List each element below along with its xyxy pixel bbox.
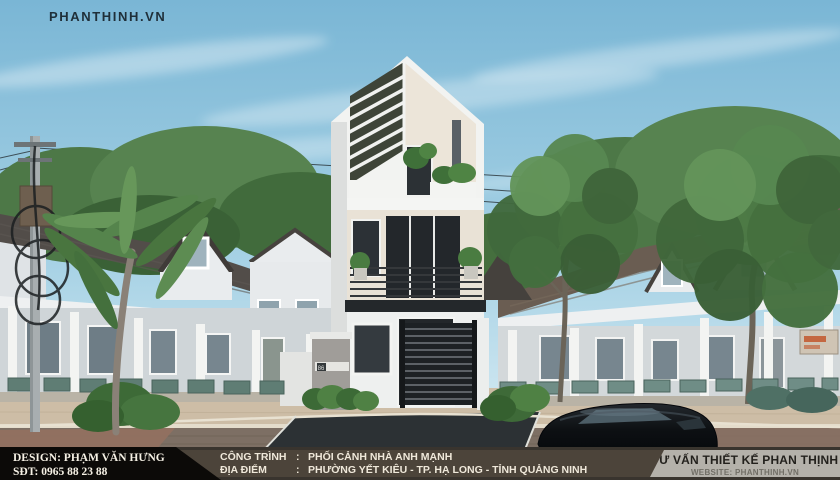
location-row: ĐỊA ĐIỂM : PHƯỜNG YẾT KIÊU - TP. HẠ LONG…	[220, 464, 672, 477]
shop-sign	[800, 330, 838, 354]
house-number: 86	[318, 366, 325, 372]
project-separator: :	[296, 451, 308, 464]
location-label: ĐỊA ĐIỂM	[220, 464, 296, 477]
footer-project-info: CÔNG TRÌNH : PHỐI CẢNH NHÀ ANH MẠNH ĐỊA …	[168, 450, 672, 477]
project-row: CÔNG TRÌNH : PHỐI CẢNH NHÀ ANH MẠNH	[220, 451, 672, 464]
footer-bar: CÔNG TRÌNH : PHỐI CẢNH NHÀ ANH MẠNH ĐỊA …	[0, 447, 840, 480]
render-canvas: 86	[0, 0, 840, 480]
location-separator: :	[296, 464, 308, 477]
footer-brand: TƯ VẤN THIẾT KẾ PHAN THỊNH WEBSITE: PHAN…	[650, 450, 840, 477]
entry-gate	[400, 320, 477, 408]
project-value: PHỐI CẢNH NHÀ ANH MẠNH	[308, 451, 452, 464]
project-label: CÔNG TRÌNH	[220, 451, 296, 464]
designer-phone: SĐT: 0965 88 23 88	[13, 466, 224, 480]
watermark-logo: PHANTHINH.VN	[49, 9, 166, 24]
architectural-render: 86	[0, 0, 840, 480]
brand-title: TƯ VẤN THIẾT KẾ PHAN THỊNH	[650, 453, 840, 467]
brand-website: WEBSITE: PHANTHINH.VN	[650, 468, 840, 477]
location-value: PHƯỜNG YẾT KIÊU - TP. HẠ LONG - TỈNH QUẢ…	[308, 464, 587, 477]
